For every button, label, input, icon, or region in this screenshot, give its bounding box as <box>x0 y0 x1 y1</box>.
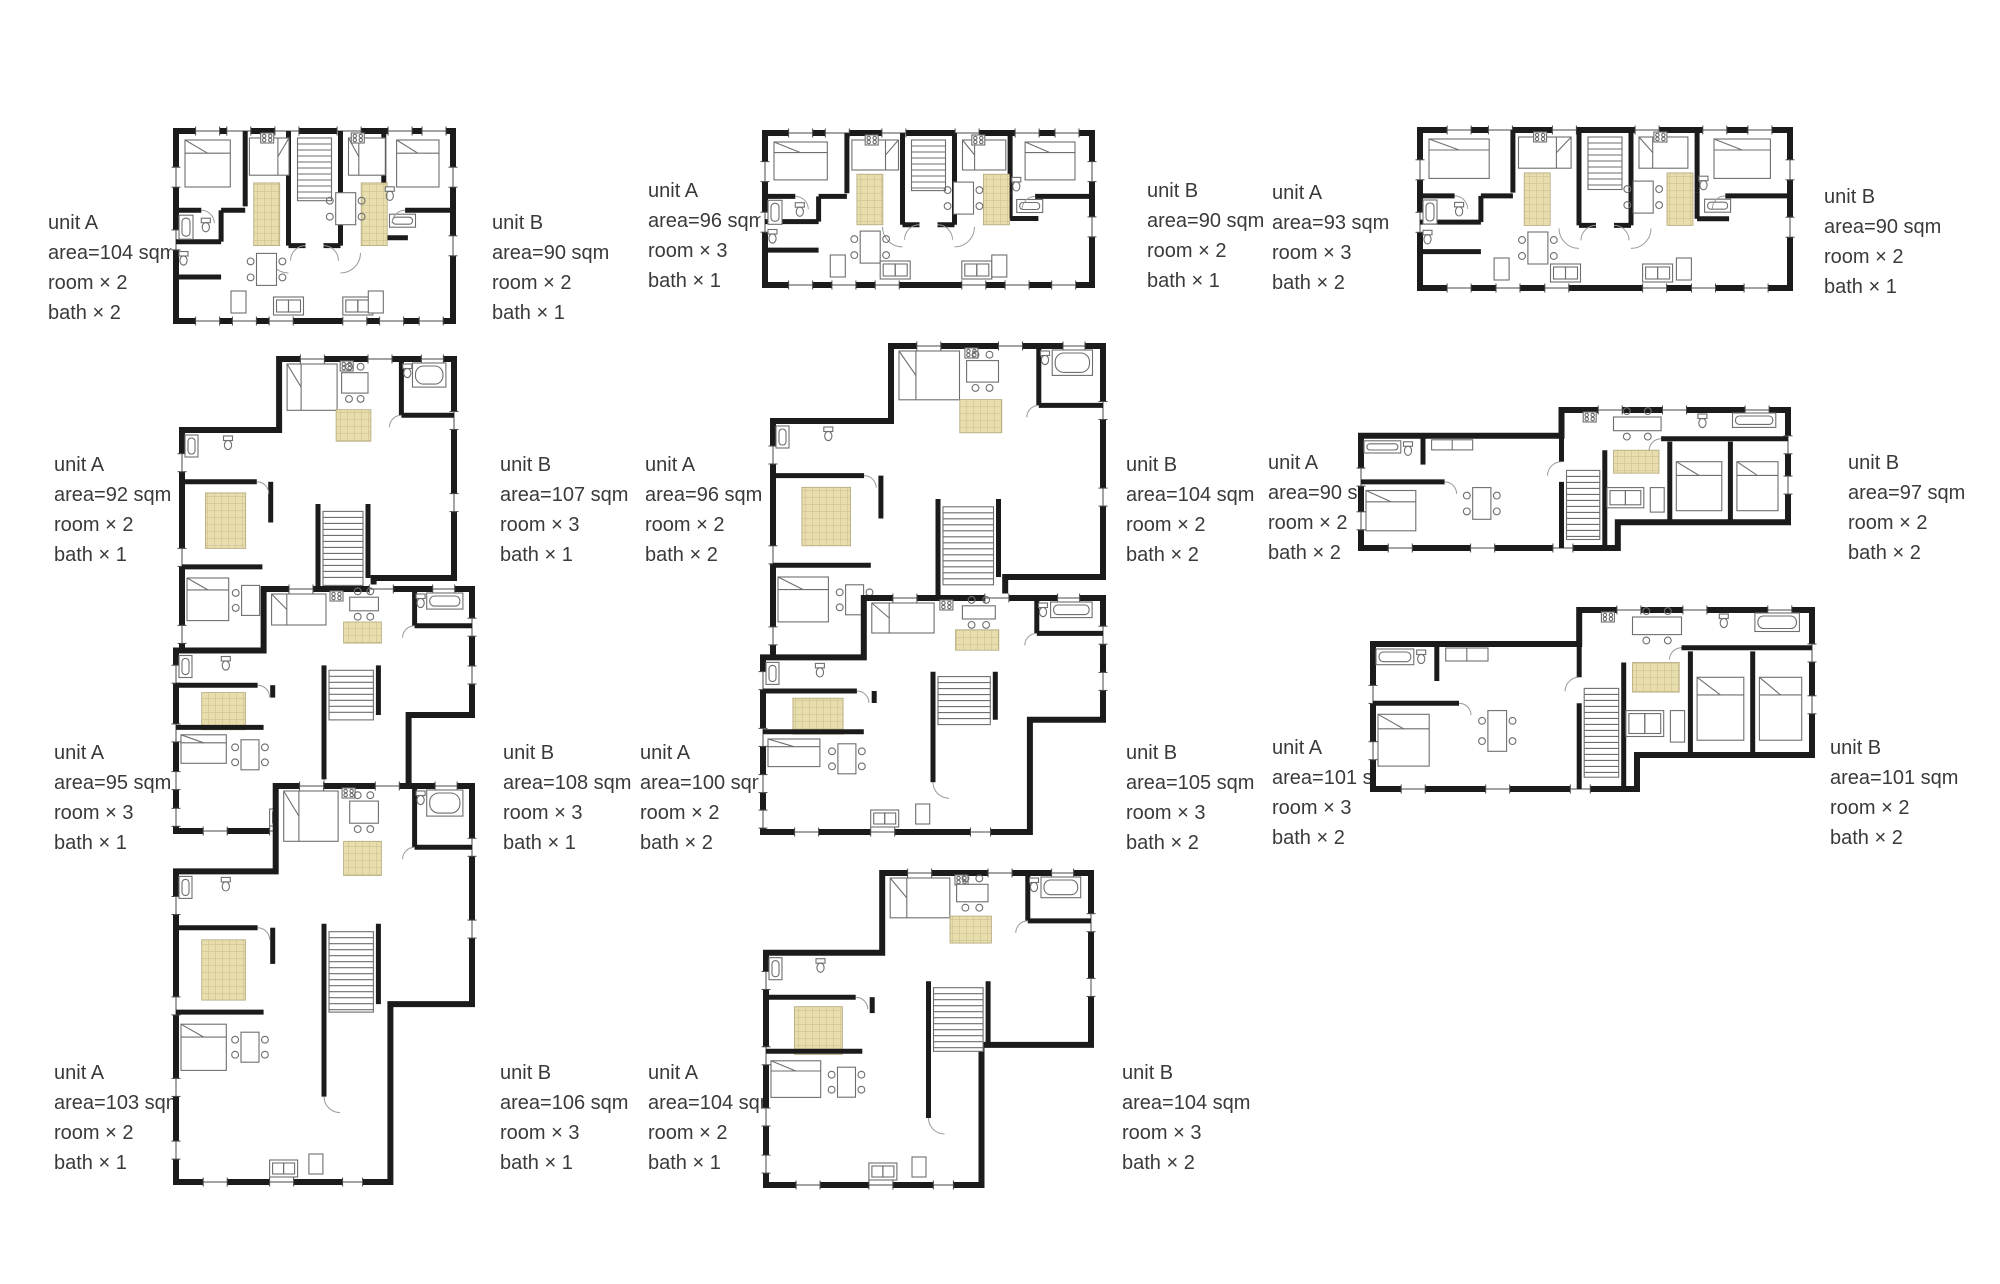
unit-bath-count: bath × 2 <box>48 298 176 328</box>
unit-room-count: room × 2 <box>48 268 176 298</box>
unit-a-label: unit A area=100 sqm room × 2 bath × 2 <box>640 738 768 858</box>
unit-bath-count: bath × 1 <box>492 298 609 328</box>
unit-area: area=90 sqm <box>492 238 609 268</box>
unit-title: unit B <box>1147 176 1264 206</box>
unit-bath-count: bath × 1 <box>503 828 631 858</box>
unit-area: area=104 sqm <box>1126 480 1254 510</box>
unit-area: area=92 sqm <box>54 480 171 510</box>
unit-title: unit A <box>54 1058 182 1088</box>
unit-b-label: unit B area=106 sqm room × 3 bath × 1 <box>500 1058 628 1178</box>
unit-title: unit B <box>1824 182 1941 212</box>
unit-b-label: unit B area=90 sqm room × 2 bath × 1 <box>492 208 609 328</box>
unit-room-count: room × 3 <box>1272 238 1389 268</box>
unit-room-count: room × 3 <box>500 510 628 540</box>
unit-room-count: room × 2 <box>1830 793 1958 823</box>
unit-title: unit B <box>1126 450 1254 480</box>
unit-room-count: room × 3 <box>500 1118 628 1148</box>
unit-title: unit A <box>48 208 176 238</box>
unit-area: area=108 sqm <box>503 768 631 798</box>
unit-b-label: unit B area=105 sqm room × 3 bath × 2 <box>1126 738 1254 858</box>
unit-room-count: room × 2 <box>648 1118 776 1148</box>
unit-bath-count: bath × 2 <box>645 540 762 570</box>
unit-a-label: unit A area=95 sqm room × 3 bath × 1 <box>54 738 171 858</box>
unit-bath-count: bath × 1 <box>500 540 628 570</box>
unit-area: area=95 sqm <box>54 768 171 798</box>
unit-bath-count: bath × 1 <box>1824 272 1941 302</box>
unit-a-label: unit A area=96 sqm room × 2 bath × 2 <box>645 450 762 570</box>
unit-room-count: room × 2 <box>1126 510 1254 540</box>
floor-plan-drawing <box>760 595 1106 835</box>
unit-room-count: room × 2 <box>54 1118 182 1148</box>
unit-bath-count: bath × 1 <box>648 266 765 296</box>
unit-title: unit B <box>1126 738 1254 768</box>
unit-bath-count: bath × 1 <box>648 1148 776 1178</box>
floor-plan-drawing <box>1370 607 1815 792</box>
unit-a-label: unit A area=93 sqm room × 3 bath × 2 <box>1272 178 1389 298</box>
unit-bath-count: bath × 2 <box>1848 538 1965 568</box>
unit-area: area=97 sqm <box>1848 478 1965 508</box>
unit-b-label: unit B area=107 sqm room × 3 bath × 1 <box>500 450 628 570</box>
unit-area: area=100 sqm <box>640 768 768 798</box>
unit-title: unit A <box>645 450 762 480</box>
unit-bath-count: bath × 1 <box>1147 266 1264 296</box>
unit-room-count: room × 3 <box>1272 793 1400 823</box>
unit-a-label: unit A area=103 sqm room × 2 bath × 1 <box>54 1058 182 1178</box>
unit-room-count: room × 2 <box>645 510 762 540</box>
unit-room-count: room × 3 <box>648 236 765 266</box>
unit-a-label: unit A area=104 sqm room × 2 bath × 2 <box>48 208 176 328</box>
unit-title: unit B <box>1848 448 1965 478</box>
unit-title: unit A <box>54 450 171 480</box>
unit-title: unit A <box>1272 178 1389 208</box>
floor-plan-drawing <box>173 128 456 324</box>
unit-title: unit A <box>648 176 765 206</box>
unit-title: unit A <box>54 738 171 768</box>
unit-room-count: room × 3 <box>1122 1118 1250 1148</box>
unit-area: area=96 sqm <box>645 480 762 510</box>
unit-a-label: unit A area=104 sqm room × 2 bath × 1 <box>648 1058 776 1178</box>
unit-room-count: room × 2 <box>1824 242 1941 272</box>
unit-area: area=93 sqm <box>1272 208 1389 238</box>
unit-area: area=106 sqm <box>500 1088 628 1118</box>
unit-b-label: unit B area=97 sqm room × 2 bath × 2 <box>1848 448 1965 568</box>
unit-b-label: unit B area=108 sqm room × 3 bath × 1 <box>503 738 631 858</box>
unit-area: area=107 sqm <box>500 480 628 510</box>
unit-area: area=104 sqm <box>1122 1088 1250 1118</box>
unit-b-label: unit B area=101 sqm room × 2 bath × 2 <box>1830 733 1958 853</box>
unit-room-count: room × 2 <box>1147 236 1264 266</box>
unit-room-count: room × 3 <box>1126 798 1254 828</box>
unit-room-count: room × 2 <box>1848 508 1965 538</box>
floor-plan-sheet: unit A area=104 sqm room × 2 bath × 2 un… <box>0 0 2000 1284</box>
unit-bath-count: bath × 1 <box>54 540 171 570</box>
unit-title: unit B <box>1122 1058 1250 1088</box>
unit-title: unit B <box>492 208 609 238</box>
unit-room-count: room × 3 <box>54 798 171 828</box>
unit-bath-count: bath × 2 <box>1272 268 1389 298</box>
unit-room-count: room × 2 <box>492 268 609 298</box>
floor-plan-drawing <box>173 783 475 1185</box>
unit-bath-count: bath × 2 <box>1126 540 1254 570</box>
unit-title: unit B <box>1830 733 1958 763</box>
unit-area: area=104 sqm <box>648 1088 776 1118</box>
unit-title: unit B <box>500 1058 628 1088</box>
unit-title: unit A <box>640 738 768 768</box>
floor-plan-drawing <box>1358 407 1791 551</box>
unit-bath-count: bath × 2 <box>1272 823 1400 853</box>
unit-bath-count: bath × 2 <box>1830 823 1958 853</box>
unit-a-label: unit A area=92 sqm room × 2 bath × 1 <box>54 450 171 570</box>
unit-title: unit B <box>503 738 631 768</box>
floor-plan-drawing <box>763 870 1094 1188</box>
unit-area: area=90 sqm <box>1147 206 1264 236</box>
unit-b-label: unit B area=90 sqm room × 2 bath × 1 <box>1824 182 1941 302</box>
unit-room-count: room × 2 <box>54 510 171 540</box>
unit-room-count: room × 2 <box>640 798 768 828</box>
unit-b-label: unit B area=104 sqm room × 2 bath × 2 <box>1126 450 1254 570</box>
floor-plan-drawing <box>1417 127 1793 291</box>
unit-bath-count: bath × 1 <box>500 1148 628 1178</box>
unit-bath-count: bath × 1 <box>54 828 171 858</box>
unit-b-label: unit B area=104 sqm room × 3 bath × 2 <box>1122 1058 1250 1178</box>
unit-area: area=105 sqm <box>1126 768 1254 798</box>
unit-bath-count: bath × 2 <box>1126 828 1254 858</box>
unit-a-label: unit A area=96 sqm room × 3 bath × 1 <box>648 176 765 296</box>
floor-plan-drawing <box>762 130 1095 288</box>
unit-area: area=104 sqm <box>48 238 176 268</box>
unit-area: area=90 sqm <box>1824 212 1941 242</box>
unit-area: area=101 sqm <box>1830 763 1958 793</box>
unit-title: unit A <box>648 1058 776 1088</box>
unit-title: unit B <box>500 450 628 480</box>
unit-room-count: room × 3 <box>503 798 631 828</box>
unit-bath-count: bath × 2 <box>640 828 768 858</box>
unit-bath-count: bath × 1 <box>54 1148 182 1178</box>
unit-bath-count: bath × 2 <box>1122 1148 1250 1178</box>
unit-area: area=103 sqm <box>54 1088 182 1118</box>
unit-b-label: unit B area=90 sqm room × 2 bath × 1 <box>1147 176 1264 296</box>
unit-area: area=96 sqm <box>648 206 765 236</box>
